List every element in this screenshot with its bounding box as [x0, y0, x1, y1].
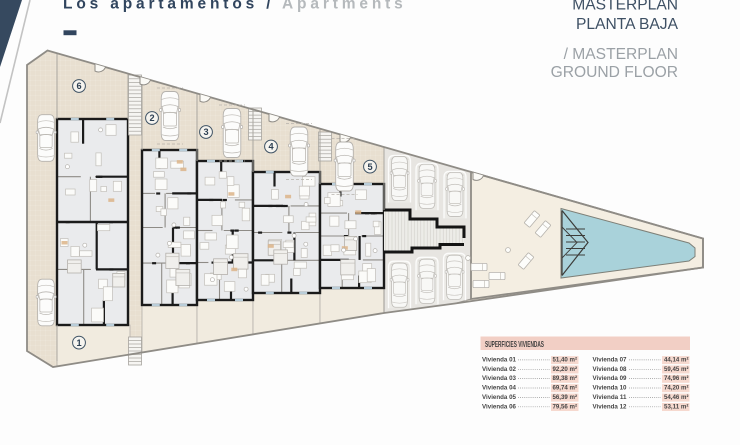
svg-text:Los apartamentos / Apartments: Los apartamentos / Apartments — [63, 0, 407, 13]
svg-text:2: 2 — [149, 113, 154, 123]
svg-text:53,11 m²: 53,11 m² — [664, 403, 689, 410]
svg-text:79,56 m²: 79,56 m² — [553, 403, 578, 410]
svg-text:MASTERPLAN: MASTERPLAN — [572, 0, 678, 14]
svg-text:69,74 m²: 69,74 m² — [553, 385, 578, 392]
svg-text:44,14 m²: 44,14 m² — [664, 357, 689, 364]
svg-text:Vivienda 01: Vivienda 01 — [482, 357, 516, 364]
svg-text:5: 5 — [367, 162, 372, 172]
svg-text:Vivienda 08: Vivienda 08 — [593, 366, 627, 373]
svg-text:Vivienda 11: Vivienda 11 — [593, 394, 627, 401]
svg-text:3: 3 — [203, 127, 208, 137]
svg-text:Vivienda 09: Vivienda 09 — [593, 375, 627, 382]
svg-text:Vivienda 10: Vivienda 10 — [593, 385, 627, 392]
svg-text:89,38 m²: 89,38 m² — [553, 375, 578, 382]
svg-text:Vivienda 06: Vivienda 06 — [482, 403, 516, 410]
svg-text:Vivienda 12: Vivienda 12 — [593, 403, 627, 410]
svg-text:Vivienda 04: Vivienda 04 — [482, 385, 516, 392]
svg-text:4: 4 — [268, 142, 274, 152]
svg-text:SUPERFICIES VIVIENDAS: SUPERFICIES VIVIENDAS — [485, 340, 544, 349]
svg-text:56,39 m²: 56,39 m² — [553, 394, 578, 401]
svg-text:GROUND FLOOR: GROUND FLOOR — [551, 64, 678, 81]
svg-text:54,46 m²: 54,46 m² — [664, 394, 689, 401]
svg-text:51,40 m²: 51,40 m² — [553, 357, 578, 364]
svg-text:Vivienda 07: Vivienda 07 — [593, 357, 627, 364]
svg-text:Vivienda 03: Vivienda 03 — [482, 375, 516, 382]
svg-text:1: 1 — [76, 338, 81, 348]
svg-text:/ MASTERPLAN: / MASTERPLAN — [564, 46, 678, 63]
svg-text:Vivienda 02: Vivienda 02 — [482, 366, 516, 373]
svg-text:PLANTA BAJA: PLANTA BAJA — [576, 16, 679, 33]
svg-text:74,20 m²: 74,20 m² — [664, 385, 689, 392]
svg-text:92,20 m²: 92,20 m² — [553, 366, 578, 373]
svg-text:59,45 m²: 59,45 m² — [664, 366, 689, 373]
svg-text:Vivienda 05: Vivienda 05 — [482, 394, 516, 401]
svg-text:6: 6 — [76, 81, 81, 91]
svg-text:74,96 m²: 74,96 m² — [664, 375, 689, 382]
